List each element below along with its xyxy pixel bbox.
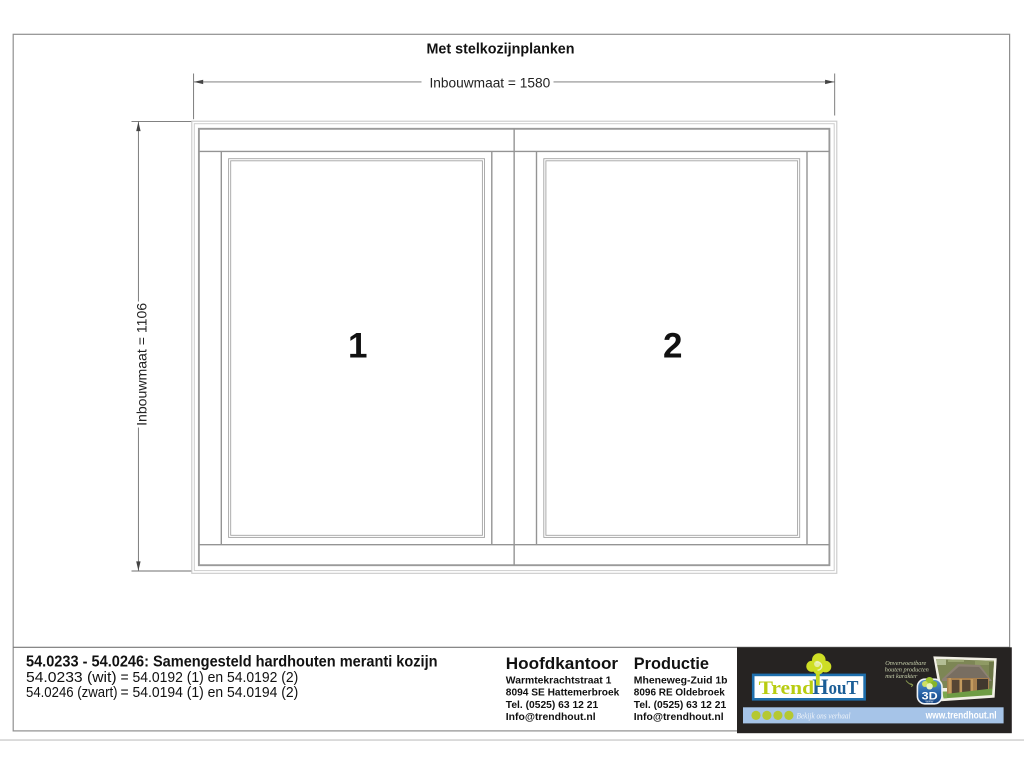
svg-text:met karakter: met karakter (885, 673, 917, 680)
svg-text:Warmtekrachtstraat 1: Warmtekrachtstraat 1 (506, 676, 612, 687)
svg-text:Hoofdkantoor: Hoofdkantoor (506, 655, 619, 673)
svg-text:2: 2 (663, 327, 682, 366)
svg-text:Tel. (0525) 63 12 21: Tel. (0525) 63 12 21 (634, 700, 727, 711)
svg-text:Info@trendhout.nl: Info@trendhout.nl (506, 712, 596, 723)
svg-text:Bekijk ons verhaal: Bekijk ons verhaal (797, 711, 852, 721)
svg-text:Trend: Trend (759, 679, 815, 699)
svg-text:8096 RE Oldebroek: 8096 RE Oldebroek (634, 688, 725, 699)
svg-text:= 54.0194 (1) en 54.0194 (2): = 54.0194 (1) en 54.0194 (2) (121, 684, 299, 701)
svg-text:1: 1 (348, 327, 367, 366)
svg-text:Tel. (0525) 63 12 21: Tel. (0525) 63 12 21 (506, 700, 599, 711)
svg-text:Met stelkozijnplanken: Met stelkozijnplanken (427, 42, 575, 58)
svg-text:54.0246 (zwart): 54.0246 (zwart) (26, 684, 118, 701)
svg-text:Mheneweg-Zuid 1b: Mheneweg-Zuid 1b (634, 676, 728, 687)
svg-text:Inbouwmaat = 1580: Inbouwmaat = 1580 (430, 75, 551, 91)
svg-text:www.trendhout.nl: www.trendhout.nl (925, 710, 997, 721)
svg-text:www: www (926, 700, 934, 704)
svg-text:Inbouwmaat = 1106: Inbouwmaat = 1106 (135, 303, 151, 426)
svg-text:Info@trendhout.nl: Info@trendhout.nl (634, 712, 724, 723)
svg-text:Productie: Productie (634, 655, 709, 673)
svg-text:8094 SE Hattemerbroek: 8094 SE Hattemerbroek (506, 688, 620, 699)
